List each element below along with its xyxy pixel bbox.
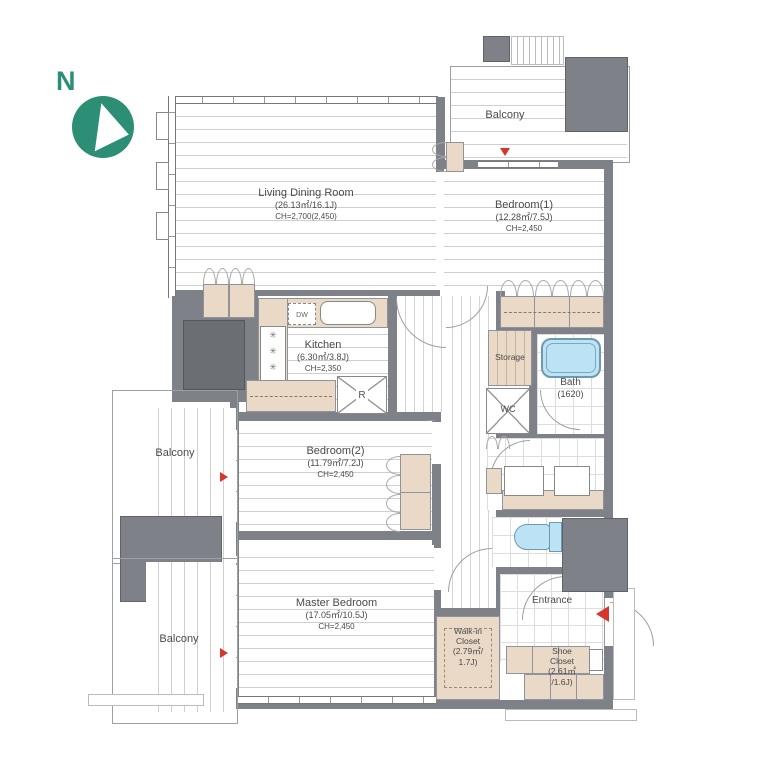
window-sill	[156, 212, 169, 240]
label-line: Shoe	[520, 646, 604, 656]
wall	[484, 510, 612, 517]
washing-machine	[554, 466, 590, 496]
room-name: Bedroom(1)	[444, 198, 604, 212]
floor-plan: N Balcony Living Dining Room (26.13㎡/16.…	[0, 0, 768, 768]
bedroom1-window	[478, 161, 558, 168]
living-room-left-window	[168, 96, 176, 298]
storage-label: Storage	[484, 352, 536, 362]
living-closet	[203, 284, 229, 318]
master-bottom-window	[238, 696, 436, 704]
kitchen-sink	[320, 301, 376, 325]
closet-rail	[504, 312, 600, 313]
kitchen-label: Kitchen (6.30㎡/3.8J) CH=2,350	[258, 338, 388, 374]
north-label: N	[56, 66, 76, 97]
room-ceiling-height: CH=2,450	[444, 224, 604, 234]
room-ceiling-height: CH=2,450	[239, 622, 434, 632]
closet-divider	[400, 492, 431, 493]
dishwasher-label: DW	[296, 312, 308, 319]
room-area: (12.28㎡/7.5J)	[444, 212, 604, 224]
label-line: (2.79㎡/	[436, 646, 500, 656]
dishwasher: DW	[288, 303, 316, 325]
room-name: Living Dining Room	[176, 186, 436, 200]
room-ceiling-height: CH=2,350	[258, 364, 388, 374]
label-line: 1.7J)	[436, 657, 500, 667]
label-line: Closet	[520, 656, 604, 666]
living-closet	[229, 284, 255, 318]
bedroom1-label: Bedroom(1) (12.28㎡/7.5J) CH=2,450	[444, 198, 604, 234]
room-name: Master Bedroom	[239, 596, 434, 610]
walkin-closet-label: Walk-in Closet (2.79㎡/ 1.7J)	[436, 626, 500, 667]
entry-porch-outline	[613, 588, 635, 700]
label-line: (2.61㎡	[520, 666, 604, 676]
cabinet-rail	[250, 396, 332, 397]
roof-block-small	[483, 36, 510, 62]
refrigerator-space: R	[337, 376, 387, 414]
room-name: Bath	[537, 376, 604, 389]
washroom-cabinet	[486, 468, 502, 494]
room-name: Kitchen	[258, 338, 388, 352]
bathtub-inner	[546, 343, 596, 373]
balcony-access-arrow-icon	[220, 648, 228, 658]
label-line: Walk-in	[436, 626, 500, 636]
room-area: (17.05㎡/10.5J)	[239, 610, 434, 622]
window-sill	[156, 162, 169, 190]
vanity-sink	[504, 466, 544, 496]
structure-block-bottom-right	[562, 518, 628, 592]
master-bedroom-label: Master Bedroom (17.05㎡/10.5J) CH=2,450	[239, 596, 434, 632]
living-room-top-window	[172, 96, 438, 104]
balcony-access-arrow-icon	[500, 148, 510, 156]
wall	[232, 531, 441, 540]
toilet-bowl	[514, 524, 550, 550]
refrigerator-label: R	[356, 390, 367, 401]
living-side-closet	[446, 142, 464, 172]
room-area: (26.13㎡/16.1J)	[176, 200, 436, 212]
balcony-bottom-label: Balcony	[134, 632, 224, 646]
roof-louver	[511, 36, 564, 65]
balcony-mid-label: Balcony	[130, 446, 220, 460]
toilet-tank	[549, 522, 562, 552]
room-area: (6.30㎡/3.8J)	[258, 352, 388, 364]
label-line: Closet	[436, 636, 500, 646]
wall	[388, 290, 397, 415]
balcony-top-label: Balcony	[460, 108, 550, 122]
window-sill	[156, 112, 169, 140]
living-room-label: Living Dining Room (26.13㎡/16.1J) CH=2,7…	[176, 186, 436, 222]
structure-block-top-right	[565, 57, 628, 132]
wc-label: WC	[486, 404, 530, 416]
shoe-closet-label: Shoe Closet (2.61㎡ /1.6J)	[520, 646, 604, 687]
balcony-divider-panel	[88, 694, 204, 706]
balcony-access-arrow-icon	[220, 472, 228, 482]
porch-step-outline	[505, 709, 637, 721]
room-ceiling-height: CH=2,700(2,450)	[176, 212, 436, 222]
label-line: /1.6J)	[520, 677, 604, 687]
shaft-block	[183, 320, 245, 390]
entrance-arrow-icon	[596, 606, 609, 622]
